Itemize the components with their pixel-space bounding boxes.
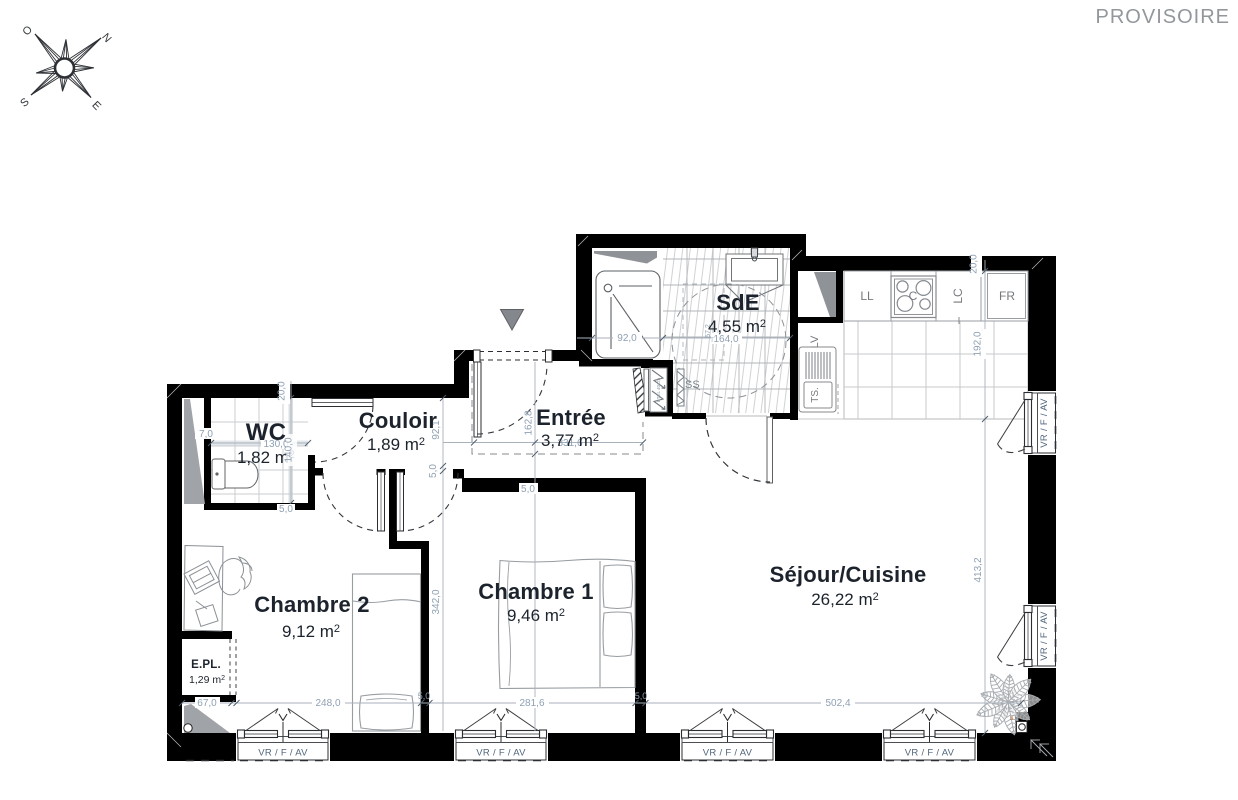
svg-text:162,8: 162,8 [524, 410, 535, 435]
svg-text:4,55 m2: 4,55 m2 [708, 317, 766, 336]
svg-text:281,6: 281,6 [519, 698, 544, 709]
svg-text:5,0: 5,0 [279, 504, 293, 515]
svg-text:502,4: 502,4 [825, 698, 850, 709]
svg-text:7,0: 7,0 [199, 429, 213, 440]
svg-text:1,29 m2: 1,29 m2 [189, 674, 225, 686]
svg-text:248,0: 248,0 [315, 698, 340, 709]
svg-text:VR / F / AV: VR / F / AV [1039, 398, 1050, 448]
svg-text:E.PL.: E.PL. [191, 659, 221, 671]
svg-text:Entrée: Entrée [536, 405, 606, 430]
svg-text:⊤: ⊤ [709, 337, 715, 344]
svg-text:Chambre 1: Chambre 1 [478, 579, 594, 604]
svg-text:140,0: 140,0 [284, 437, 295, 462]
svg-text:413,2: 413,2 [973, 557, 984, 582]
svg-text:C: C [909, 289, 918, 303]
svg-text:9,46 m2: 9,46 m2 [507, 606, 565, 625]
svg-text:5,0: 5,0 [521, 484, 535, 495]
svg-text:192,0: 192,0 [973, 331, 984, 356]
svg-text:VR / F / AV: VR / F / AV [1039, 611, 1050, 661]
svg-text:WC: WC [246, 419, 286, 446]
svg-text:92,0: 92,0 [617, 333, 637, 344]
svg-text:Chambre 2: Chambre 2 [254, 592, 370, 617]
svg-text:VR / F / AV: VR / F / AV [703, 748, 753, 759]
svg-text:67,0: 67,0 [197, 698, 217, 709]
svg-text:LL: LL [860, 289, 874, 303]
svg-text:Couloir: Couloir [359, 408, 438, 433]
svg-text:20,0: 20,0 [969, 254, 980, 274]
svg-text:VR / F / AV: VR / F / AV [905, 748, 955, 759]
svg-text:5,0: 5,0 [635, 691, 648, 701]
svg-text:PROVISOIRE: PROVISOIRE [1096, 6, 1230, 28]
svg-text:ETEL 40x25: ETEL 40x25 [656, 377, 661, 402]
svg-text:9,12 m2: 9,12 m2 [282, 622, 340, 641]
svg-text:VR / F / AV: VR / F / AV [258, 748, 308, 759]
svg-text:LC: LC [951, 288, 965, 304]
svg-text:20,0: 20,0 [277, 381, 288, 401]
svg-text:VR / F / AV: VR / F / AV [476, 748, 526, 759]
svg-text:5,0: 5,0 [428, 464, 439, 478]
svg-text:5,0: 5,0 [418, 691, 431, 701]
svg-text:SS: SS [685, 379, 700, 391]
svg-text:LV: LV [809, 335, 821, 348]
svg-text:26,22 m2: 26,22 m2 [811, 590, 879, 609]
svg-text:SdE: SdE [716, 290, 759, 315]
svg-text:1,89 m2: 1,89 m2 [367, 435, 425, 454]
svg-text:342,0: 342,0 [431, 589, 442, 614]
svg-text:Séjour/Cuisine: Séjour/Cuisine [770, 562, 927, 587]
svg-text:3,77 m2: 3,77 m2 [541, 431, 599, 450]
svg-text:TS.: TS. [810, 387, 821, 403]
svg-text:FR: FR [999, 289, 1015, 303]
